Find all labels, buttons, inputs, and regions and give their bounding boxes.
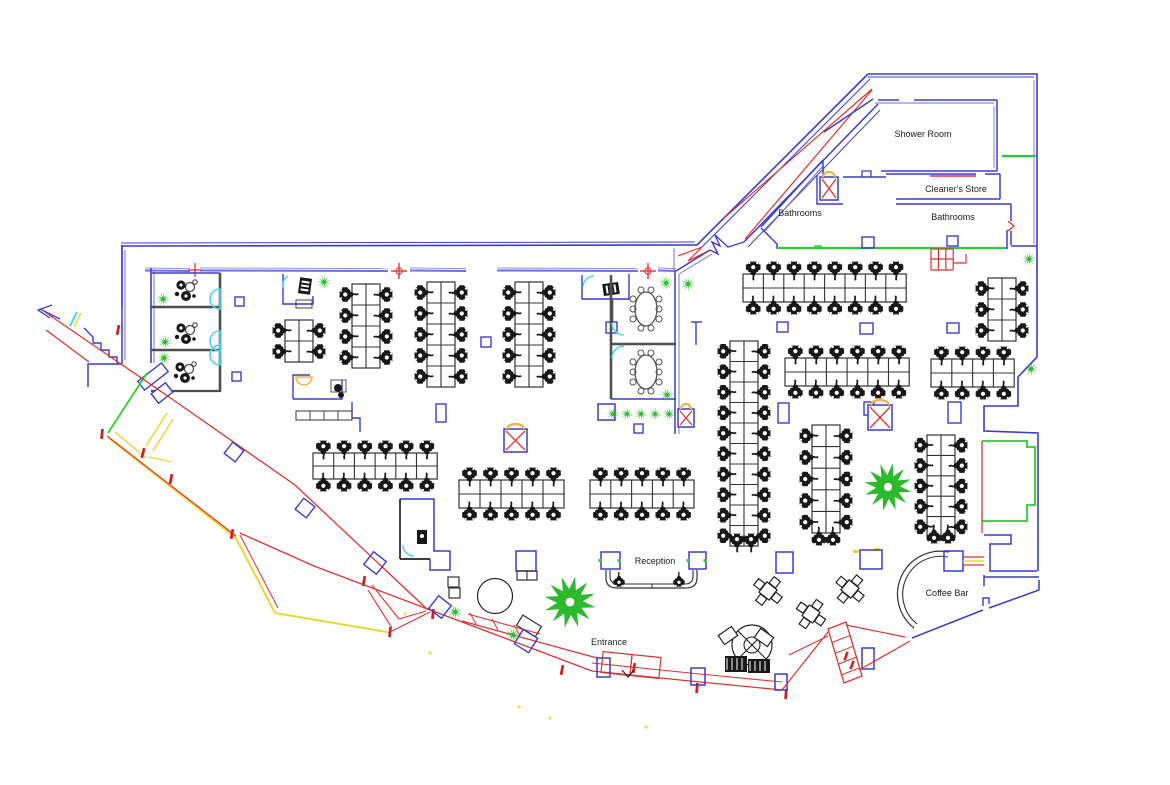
svg-text:Bathrooms: Bathrooms (931, 212, 975, 222)
svg-text:Coffee Bar: Coffee Bar (926, 588, 969, 598)
svg-text:Cleaner's Store: Cleaner's Store (925, 184, 987, 194)
svg-text:Bathrooms: Bathrooms (778, 208, 822, 218)
svg-text:Entrance: Entrance (591, 637, 627, 647)
svg-text:Shower Room: Shower Room (894, 129, 951, 139)
svg-text:Reception: Reception (635, 556, 676, 566)
